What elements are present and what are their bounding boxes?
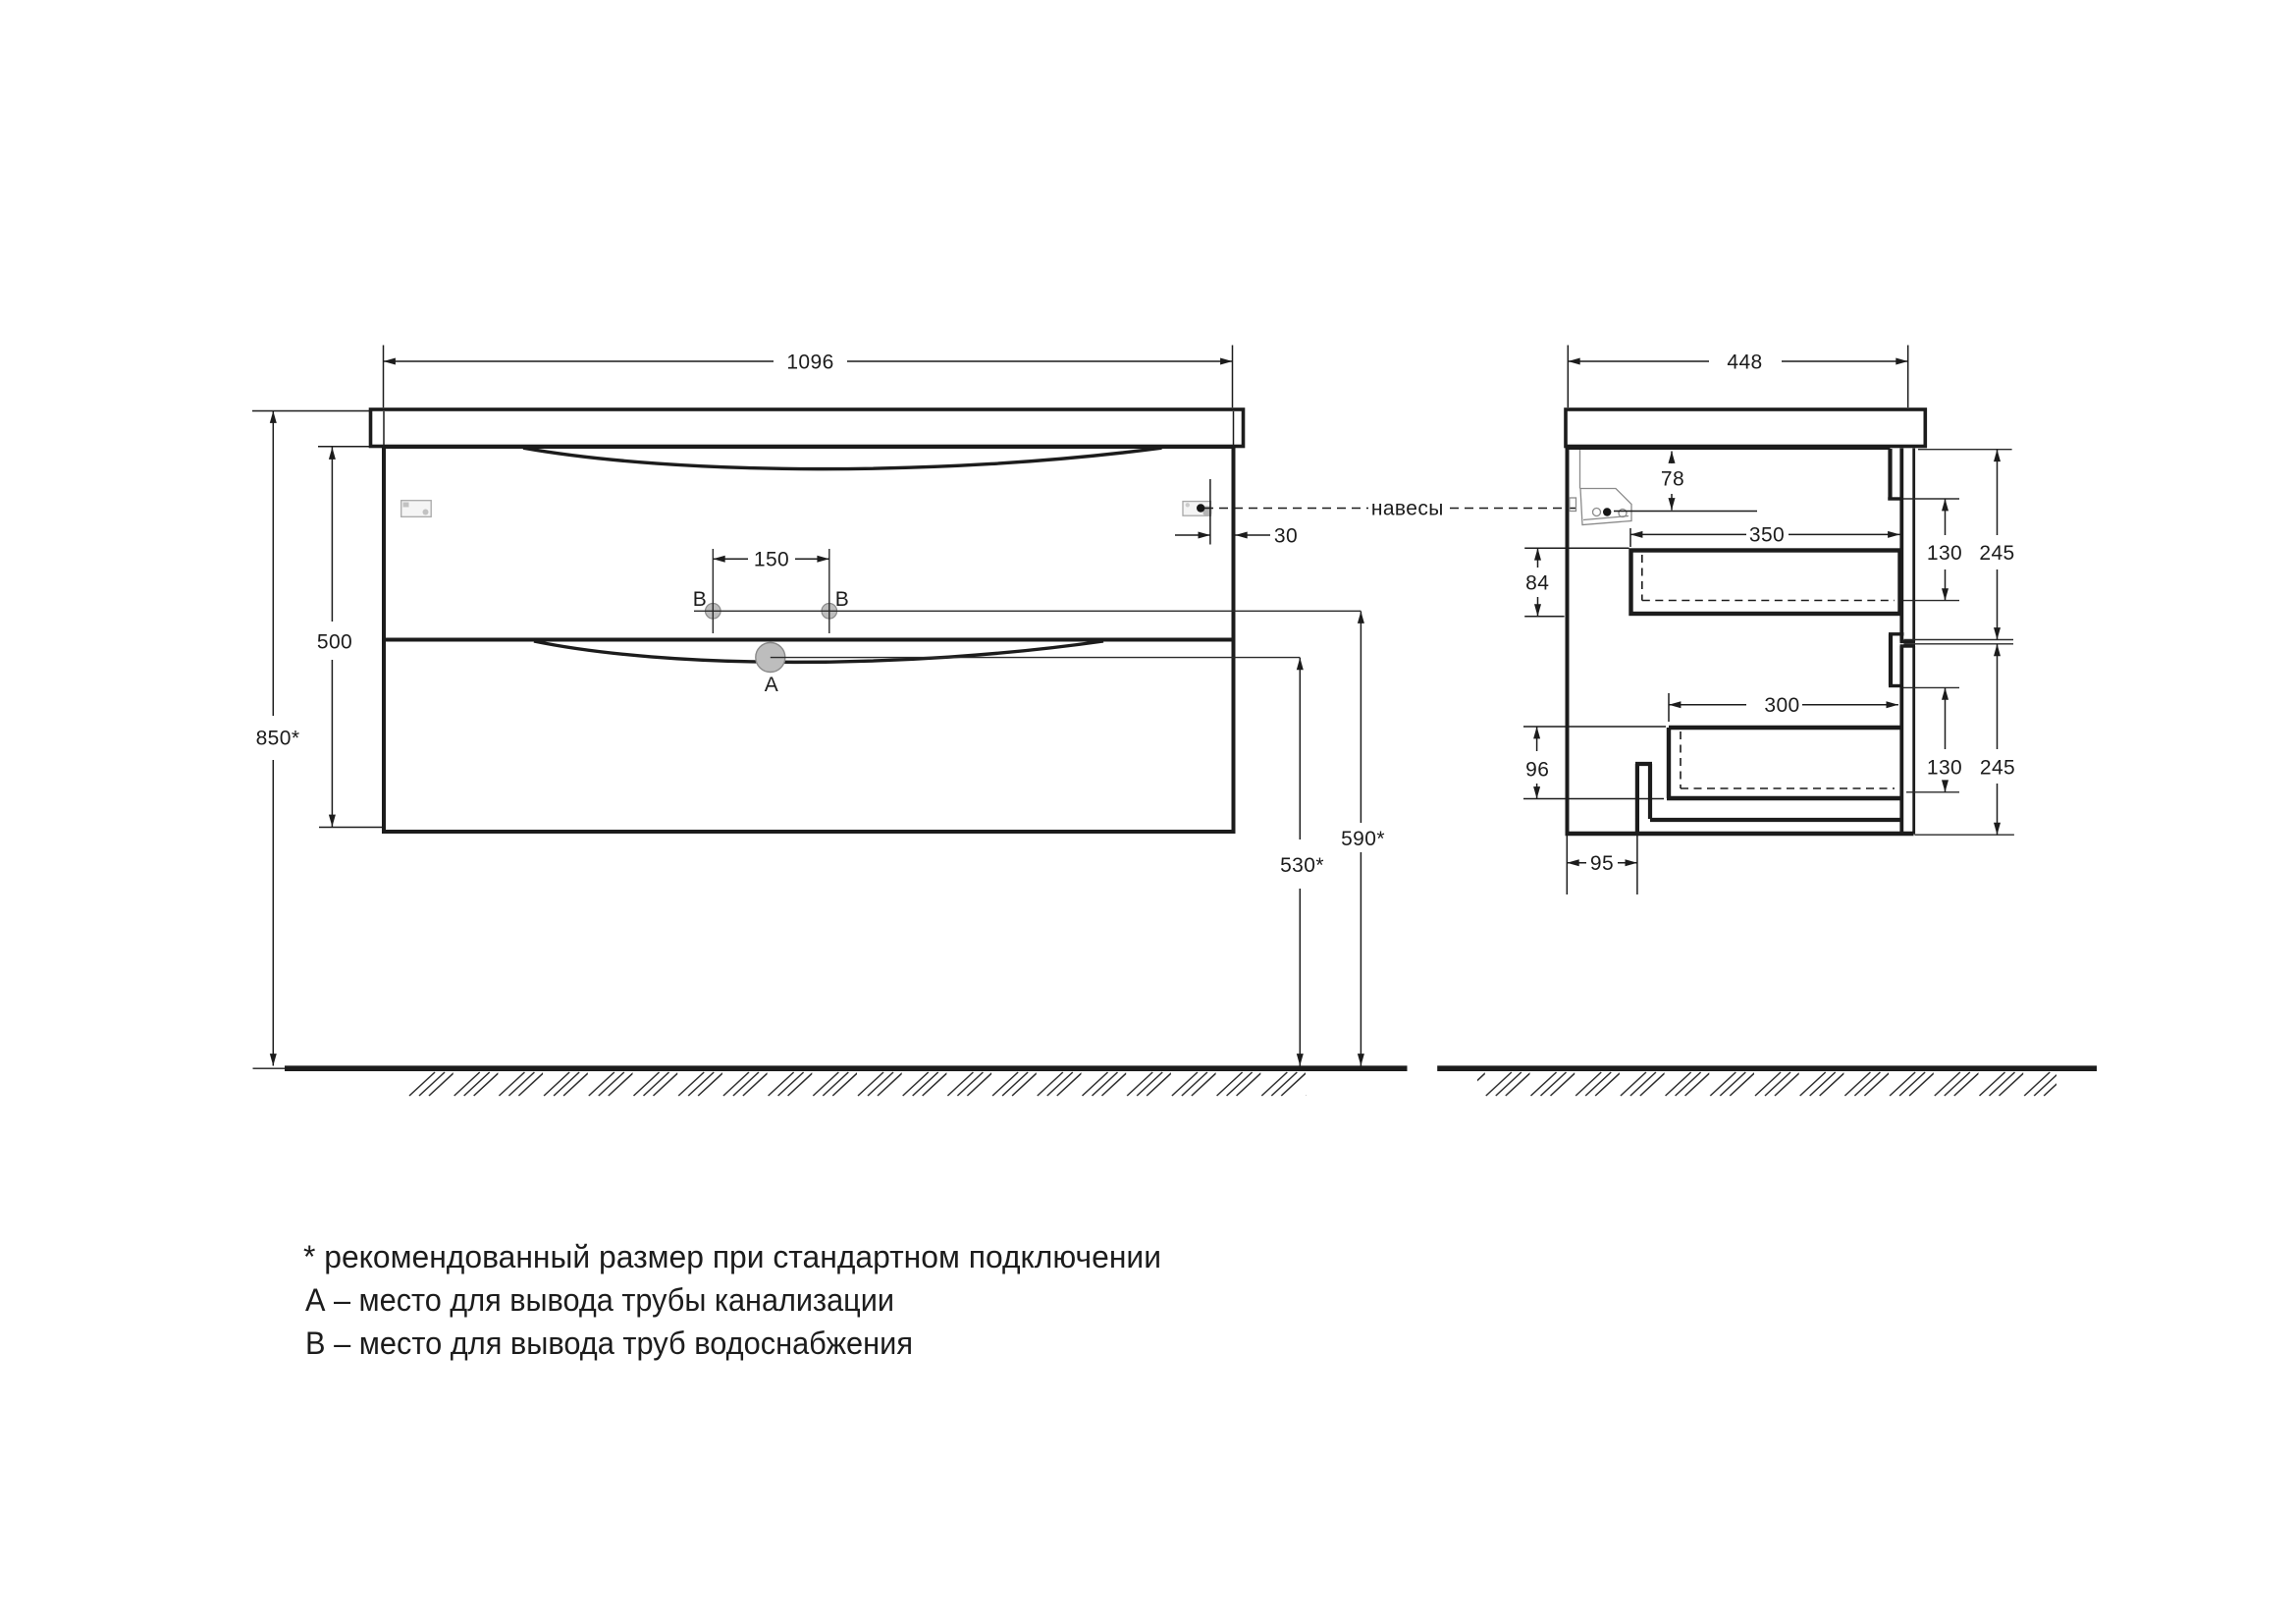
svg-text:84: 84 [1525, 572, 1549, 595]
svg-text:30: 30 [1274, 525, 1298, 548]
svg-text:А – место для вывода трубы кан: А – место для вывода трубы канализации [305, 1282, 894, 1318]
svg-text:150: 150 [754, 549, 789, 571]
svg-text:245: 245 [1980, 757, 2015, 780]
svg-text:448: 448 [1727, 352, 1762, 374]
svg-text:130: 130 [1927, 542, 1962, 565]
svg-text:95: 95 [1590, 852, 1614, 875]
svg-text:245: 245 [1979, 542, 2014, 565]
svg-text:навесы: навесы [1371, 498, 1444, 520]
svg-text:96: 96 [1525, 759, 1549, 782]
svg-text:300: 300 [1764, 694, 1799, 717]
svg-text:* рекомендованный размер при с: * рекомендованный размер при стандартном… [303, 1239, 1161, 1274]
svg-text:590*: 590* [1341, 828, 1385, 850]
svg-text:В: В [693, 588, 707, 611]
svg-text:В: В [835, 588, 849, 611]
svg-text:350: 350 [1749, 524, 1785, 547]
svg-text:850*: 850* [256, 728, 300, 750]
svg-text:В – место для вывода труб водо: В – место для вывода труб водоснабжения [305, 1326, 913, 1361]
svg-text:500: 500 [317, 631, 352, 654]
svg-text:130: 130 [1927, 757, 1962, 780]
svg-text:А: А [765, 674, 778, 696]
svg-text:1096: 1096 [786, 352, 833, 374]
svg-text:530*: 530* [1280, 854, 1324, 877]
svg-text:78: 78 [1661, 468, 1684, 491]
